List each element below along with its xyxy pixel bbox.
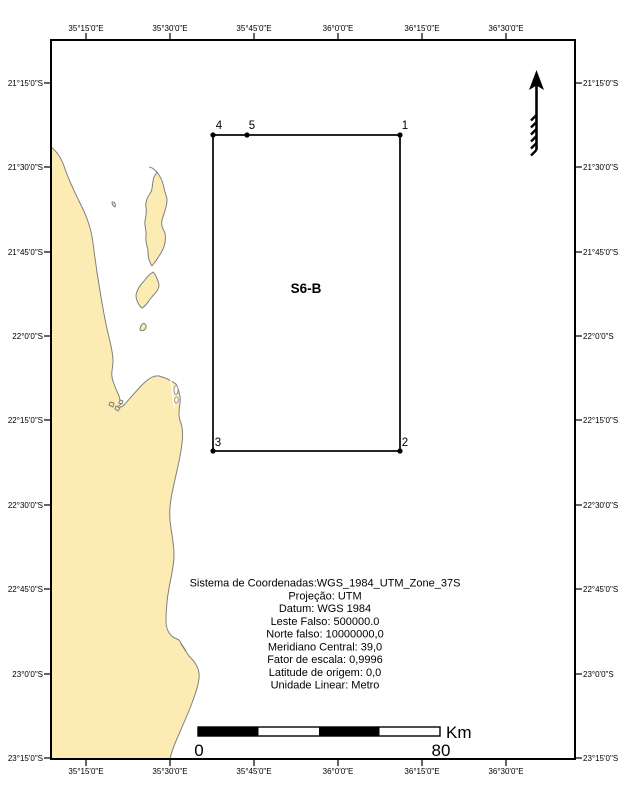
projection-info-line: Leste Falso: 500000.0 xyxy=(271,616,380,628)
point-marker-5 xyxy=(244,132,249,137)
projection-info-line: Unidade Linear: Metro xyxy=(271,680,380,692)
lon-label-bottom: 35°45'0"E xyxy=(236,767,271,776)
projection-info-block: Sistema de Coordenadas:WGS_1984_UTM_Zone… xyxy=(190,578,461,692)
projection-info-line: Datum: WGS 1984 xyxy=(279,603,371,615)
point-marker-3 xyxy=(210,448,215,453)
island-small xyxy=(136,272,159,308)
lat-label-left: 22°30'0"S xyxy=(8,501,43,510)
lon-label-top: 35°15'0"E xyxy=(68,24,103,33)
scale-end-label: 80 xyxy=(432,741,451,760)
lat-label-right: 21°30'0"S xyxy=(583,163,618,172)
lon-label-bottom: 36°15'0"E xyxy=(404,767,439,776)
land-layer xyxy=(51,147,199,759)
point-marker-4 xyxy=(210,132,215,137)
point-label-2: 2 xyxy=(402,437,408,449)
lat-label-left: 23°0'0"S xyxy=(12,670,43,679)
lon-label-bottom: 35°30'0"E xyxy=(152,767,187,776)
point-label-4: 4 xyxy=(216,120,223,132)
lat-label-left: 21°15'0"S xyxy=(8,79,43,88)
north-arrow-icon xyxy=(529,70,544,156)
islet-comma xyxy=(112,202,115,207)
lat-label-left: 23°15'0"S xyxy=(8,754,43,763)
scale-bar: 0 80 Km xyxy=(194,723,471,760)
lon-label-top: 35°30'0"E xyxy=(152,24,187,33)
projection-info-line: Fator de escala: 0,9996 xyxy=(267,654,383,666)
lat-label-right: 22°30'0"S xyxy=(583,501,618,510)
point-marker-1 xyxy=(397,132,402,137)
point-marker-2 xyxy=(397,448,402,453)
projection-info-line: Latitude de origem: 0,0 xyxy=(269,667,382,679)
lon-label-top: 35°45'0"E xyxy=(236,24,271,33)
lat-label-right: 22°45'0"S xyxy=(583,585,618,594)
bay-islet-3 xyxy=(119,400,123,404)
lon-label-top: 36°0'0"E xyxy=(323,24,354,33)
projection-info-line: Meridiano Central: 39,0 xyxy=(268,641,382,653)
lat-label-right: 21°45'0"S xyxy=(583,248,618,257)
lat-label-right: 22°15'0"S xyxy=(583,416,618,425)
lat-label-left: 21°45'0"S xyxy=(8,248,43,257)
lon-label-top: 36°30'0"E xyxy=(488,24,523,33)
lat-label-left: 22°45'0"S xyxy=(8,585,43,594)
lat-label-right: 23°15'0"S xyxy=(583,754,618,763)
scale-start-label: 0 xyxy=(194,741,203,760)
island-spit-line xyxy=(149,167,157,172)
lon-label-top: 36°15'0"E xyxy=(404,24,439,33)
lat-label-left: 21°30'0"S xyxy=(8,163,43,172)
point-label-5: 5 xyxy=(249,120,255,132)
lat-label-right: 23°0'0"S xyxy=(583,670,614,679)
scale-unit-label: Km xyxy=(446,723,472,742)
lat-label-right: 21°15'0"S xyxy=(583,79,618,88)
map-page: 35°15'0"E35°15'0"E35°30'0"E35°30'0"E35°4… xyxy=(0,0,624,796)
lon-label-bottom: 36°0'0"E xyxy=(323,767,354,776)
lat-label-left: 22°0'0"S xyxy=(12,332,43,341)
point-label-3: 3 xyxy=(215,437,221,449)
point-label-1: 1 xyxy=(402,120,408,132)
lagoon-2 xyxy=(175,397,179,403)
projection-info-line: Sistema de Coordenadas:WGS_1984_UTM_Zone… xyxy=(190,578,461,590)
study-area-label: S6-B xyxy=(291,281,322,296)
lat-label-right: 22°0'0"S xyxy=(583,332,614,341)
study-area: 4 5 1 2 3 S6-B xyxy=(210,120,408,454)
island-long xyxy=(145,172,167,266)
lon-label-bottom: 35°15'0"E xyxy=(68,767,103,776)
lat-label-left: 22°15'0"S xyxy=(8,416,43,425)
projection-info-line: Norte falso: 10000000,0 xyxy=(266,629,383,641)
lagoon-1 xyxy=(174,386,178,395)
map-canvas: 35°15'0"E35°15'0"E35°30'0"E35°30'0"E35°4… xyxy=(0,0,624,796)
islet-a xyxy=(140,323,146,330)
lon-label-bottom: 36°30'0"E xyxy=(488,767,523,776)
mainland-coastline xyxy=(51,147,199,759)
projection-info-line: Projeção: UTM xyxy=(288,590,361,602)
